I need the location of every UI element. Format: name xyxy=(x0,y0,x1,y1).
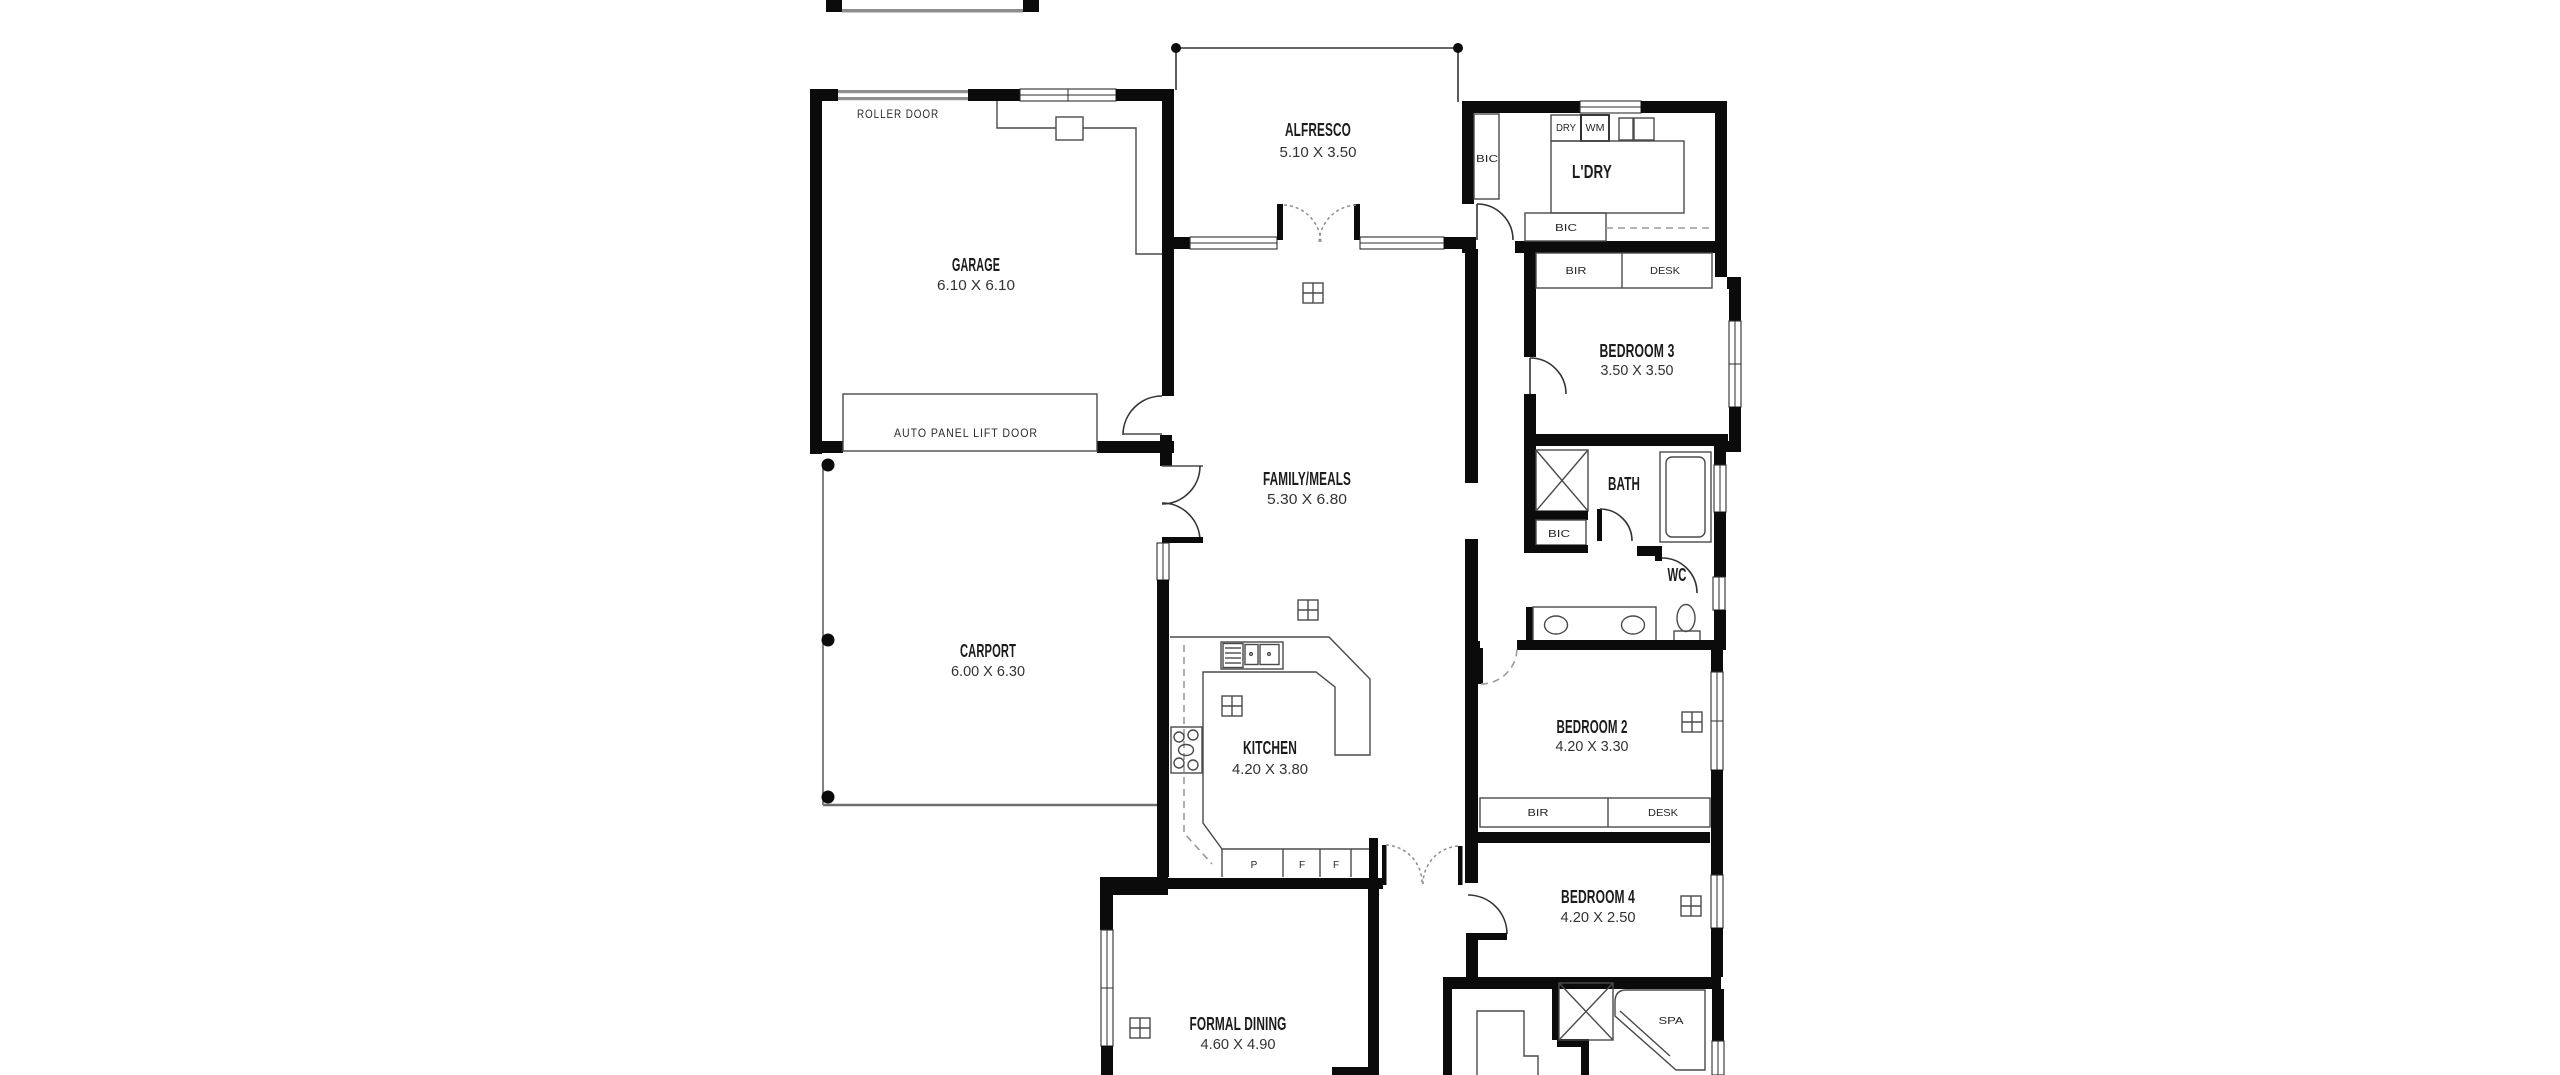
svg-text:DESK: DESK xyxy=(1648,808,1678,819)
svg-text:6.10 X 6.10: 6.10 X 6.10 xyxy=(937,278,1015,294)
svg-text:CARPORT: CARPORT xyxy=(960,640,1016,661)
svg-text:BATH: BATH xyxy=(1608,473,1640,494)
svg-text:DESK: DESK xyxy=(1650,266,1680,277)
svg-text:F: F xyxy=(1299,860,1305,871)
svg-text:FAMILY/MEALS: FAMILY/MEALS xyxy=(1263,468,1351,489)
svg-text:4.60 X 4.90: 4.60 X 4.90 xyxy=(1201,1037,1276,1053)
svg-text:BIR: BIR xyxy=(1528,808,1549,819)
svg-text:FORMAL DINING: FORMAL DINING xyxy=(1190,1013,1287,1034)
svg-text:SPA: SPA xyxy=(1659,1016,1684,1027)
svg-text:L'DRY: L'DRY xyxy=(1572,161,1612,182)
svg-text:GARAGE: GARAGE xyxy=(952,254,1000,275)
svg-text:KITCHEN: KITCHEN xyxy=(1243,737,1297,758)
svg-text:ROLLER DOOR: ROLLER DOOR xyxy=(857,107,939,121)
svg-text:BEDROOM 3: BEDROOM 3 xyxy=(1600,340,1675,361)
svg-text:F: F xyxy=(1333,860,1339,871)
svg-text:BIR: BIR xyxy=(1566,266,1587,277)
svg-text:5.10 X 3.50: 5.10 X 3.50 xyxy=(1280,145,1357,161)
svg-text:BEDROOM 4: BEDROOM 4 xyxy=(1561,886,1635,907)
svg-text:WM: WM xyxy=(1586,123,1605,134)
svg-text:3.50 X 3.50: 3.50 X 3.50 xyxy=(1601,363,1674,379)
svg-text:6.00 X 6.30: 6.00 X 6.30 xyxy=(951,664,1025,680)
svg-text:5.30 X 6.80: 5.30 X 6.80 xyxy=(1267,492,1347,508)
svg-text:P: P xyxy=(1251,860,1258,871)
svg-text:4.20 X 3.30: 4.20 X 3.30 xyxy=(1556,739,1629,755)
svg-text:4.20 X 2.50: 4.20 X 2.50 xyxy=(1561,910,1636,926)
svg-text:BIC: BIC xyxy=(1548,529,1570,540)
svg-text:WC: WC xyxy=(1668,564,1687,585)
svg-text:ALFRESCO: ALFRESCO xyxy=(1285,119,1351,140)
svg-text:4.20 X 3.80: 4.20 X 3.80 xyxy=(1232,762,1308,778)
svg-text:BIC: BIC xyxy=(1476,154,1498,165)
svg-text:BEDROOM 2: BEDROOM 2 xyxy=(1557,716,1628,737)
svg-text:DRY: DRY xyxy=(1556,123,1576,134)
svg-text:AUTO PANEL LIFT DOOR: AUTO PANEL LIFT DOOR xyxy=(894,426,1038,440)
svg-text:BIC: BIC xyxy=(1555,223,1577,234)
